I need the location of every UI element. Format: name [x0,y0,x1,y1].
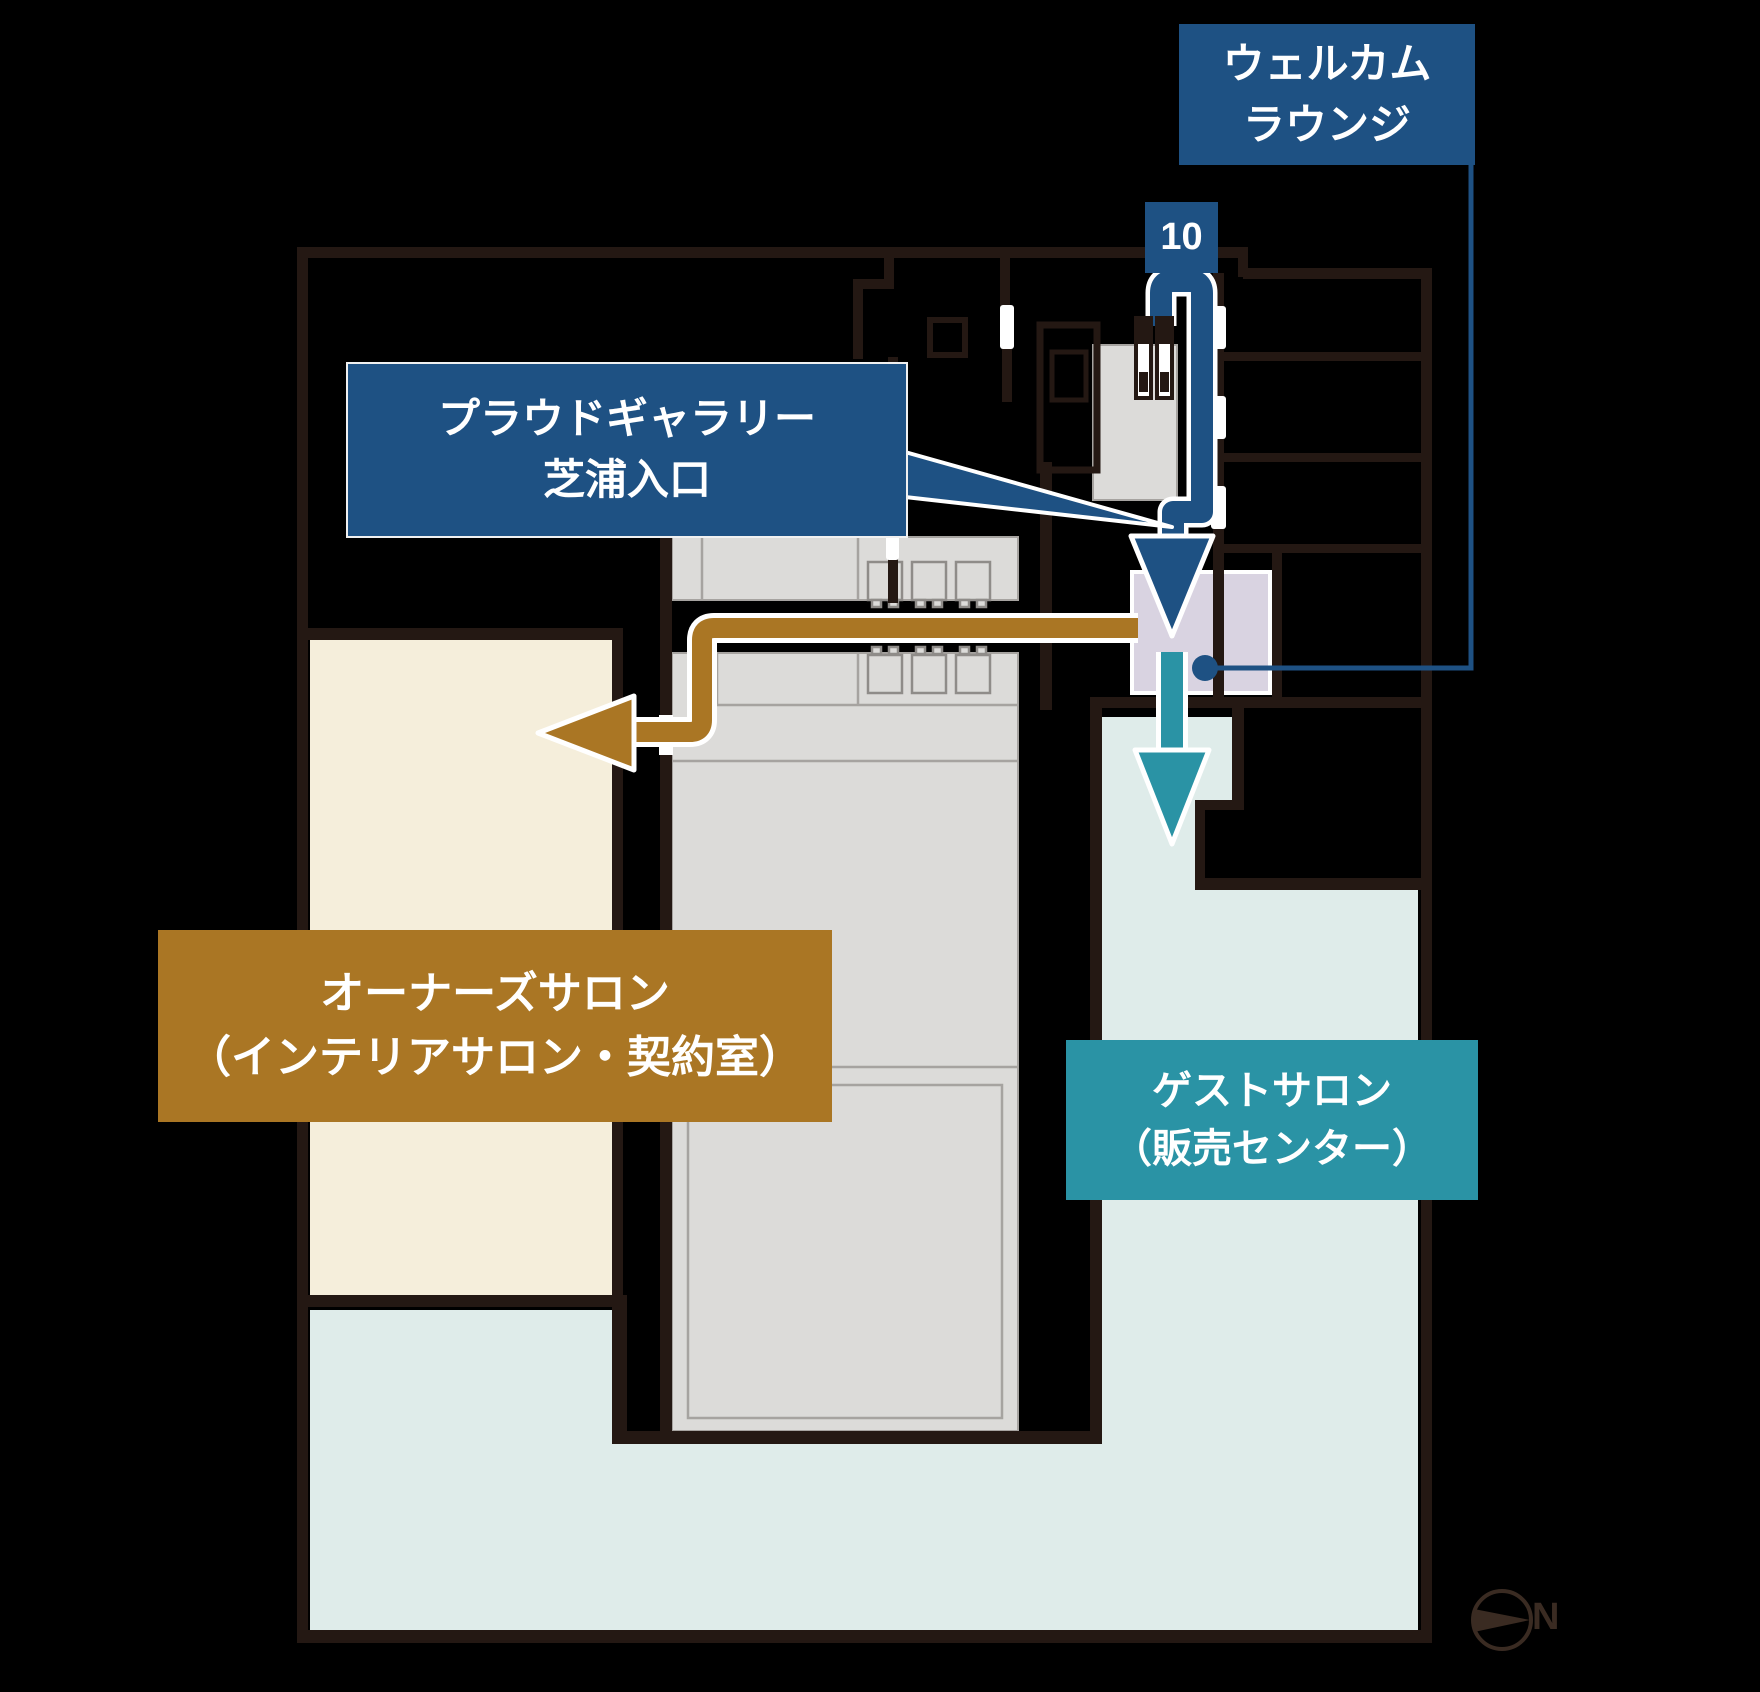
wall-below-entrance-hall [1090,697,1432,708]
welcome-lounge-label-line1: ウェルカム [1223,34,1432,95]
small-square-fixture [930,320,965,355]
access-floorplan-map: ウェルカム ラウンジ 10 プラウドギャラリー 芝浦入口 オーナーズサロン （イ… [0,0,1760,1692]
guest-salon-label: ゲストサロン （販売センター） [1066,1040,1478,1200]
wall-top [297,247,1245,258]
wall-bottom [297,1630,1432,1643]
wall-model-room-bottom [612,1431,1102,1444]
gallery-entrance-label: プラウドギャラリー 芝浦入口 [346,362,908,538]
wall-right [1421,268,1432,1643]
entrance-number-value: 10 [1160,210,1202,265]
wall-cream-bottom [297,1295,627,1307]
compass-north-icon [1473,1591,1531,1649]
guest-salon-label-line2: （販売センター） [1112,1120,1432,1178]
owners-salon-label: オーナーズサロン （インテリアサロン・契約室） [158,930,832,1122]
wall-top-right [1243,268,1432,279]
small-room-fixture [1052,352,1086,400]
floor-plan-drawing [0,0,1760,1692]
wall-cream-top [297,628,623,640]
entrance-number-badge: 10 [1145,202,1218,273]
compass-north-letter: N [1532,1596,1559,1639]
chair-row-lower [868,647,990,693]
welcome-lounge-label: ウェルカム ラウンジ [1179,24,1475,165]
guest-salon-label-line1: ゲストサロン [1152,1062,1392,1120]
gallery-entrance-label-line1: プラウドギャラリー [438,389,816,450]
welcome-lounge-anchor-dot [1192,655,1218,681]
owners-salon-label-line1: オーナーズサロン [320,962,670,1026]
gallery-entrance-label-line2: 芝浦入口 [543,450,711,511]
owners-salon-label-line2: （インテリアサロン・契約室） [187,1026,803,1090]
chair-row-upper [868,562,990,607]
welcome-lounge-label-line2: ラウンジ [1243,95,1411,156]
